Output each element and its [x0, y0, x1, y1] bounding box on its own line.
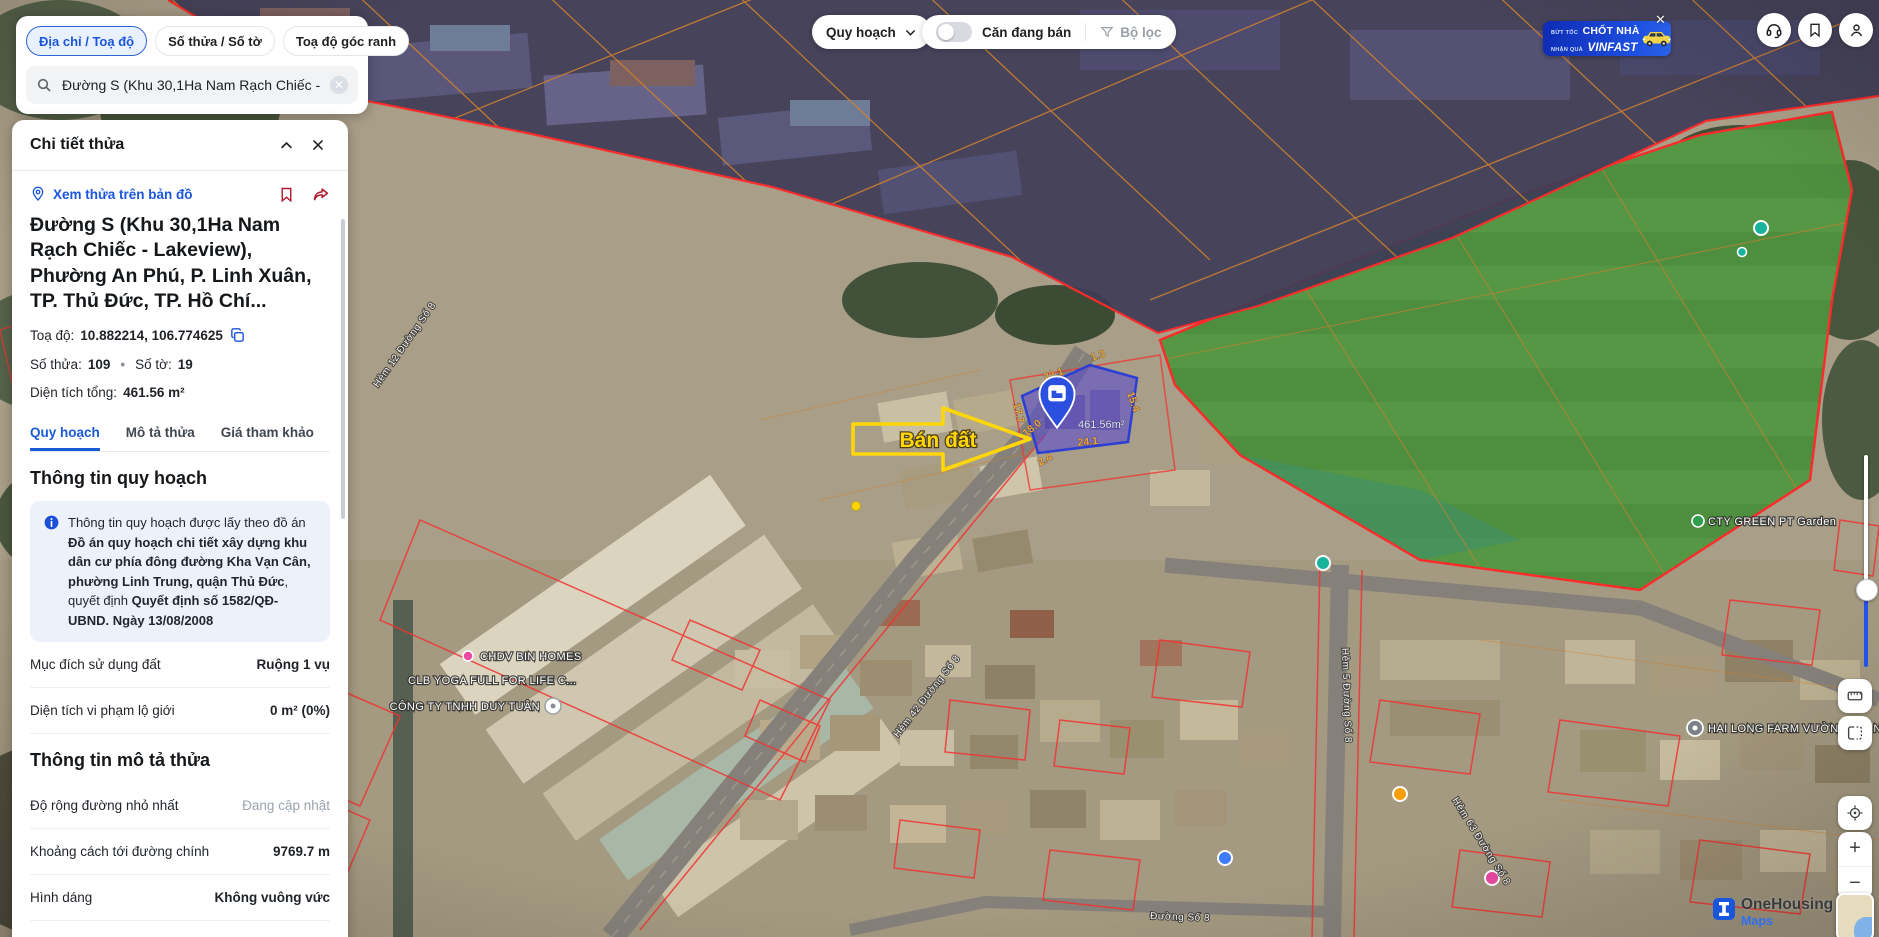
search-icon: [36, 77, 52, 93]
crosshair-icon: [1846, 804, 1864, 822]
planning-note: Thông tin quy hoạch được lấy theo đồ án …: [30, 501, 330, 642]
clear-search-icon[interactable]: ✕: [330, 76, 348, 94]
coordinates-row: Toạ độ: 10.882214, 106.774625: [30, 327, 330, 344]
tab-address-coords[interactable]: Địa chỉ / Toạ độ: [26, 26, 147, 56]
support-button[interactable]: [1757, 13, 1791, 47]
chevron-down-icon: [904, 26, 917, 39]
promo-text: BỨT TỐC CHỐT NHÀ NHẬN QUÀ VINFAST: [1543, 22, 1640, 56]
ruler-icon: [1846, 687, 1864, 705]
row-min-road-width: Độ rộng đường nhỏ nhất Đang cập nhật: [30, 783, 330, 829]
panel-header: Chi tiết thửa: [12, 120, 348, 171]
panel-title: Chi tiết thửa: [30, 136, 274, 154]
account-button[interactable]: [1839, 13, 1873, 47]
promo-close-icon[interactable]: ✕: [1655, 12, 1666, 28]
tab-reference-price[interactable]: Giá tham khảo: [221, 416, 314, 451]
collapse-icon[interactable]: [274, 133, 298, 157]
search-box[interactable]: ✕: [26, 66, 358, 104]
svg-text:CHDV BIN HOMES: CHDV BIN HOMES: [480, 651, 582, 663]
panel-body: Xem thửa trên bản đồ Đường S (Khu 30,1Ha…: [12, 171, 348, 937]
watermark-product: Maps: [1741, 915, 1833, 928]
funnel-icon: [1100, 25, 1114, 39]
row-shape: Hình dáng Không vuông vức: [30, 875, 330, 921]
saved-items-button[interactable]: [1798, 13, 1832, 47]
parcel-detail-panel: Chi tiết thửa Xem thửa trên bản đồ Đường…: [12, 120, 348, 937]
total-area-row: Diện tích tổng:461.56 m²: [30, 385, 330, 400]
description-heading: Thông tin mô tả thửa: [30, 750, 330, 771]
zoom-buttons: + −: [1838, 832, 1872, 900]
brand-watermark: OneHousing Maps: [1712, 897, 1833, 927]
compare-layers-button[interactable]: [1838, 716, 1872, 750]
map-pin-icon: [30, 186, 46, 202]
onehousing-logo: [1712, 897, 1736, 921]
headset-icon: [1765, 21, 1783, 39]
svg-text:CLB YOGA FULL FOR LIFE C...: CLB YOGA FULL FOR LIFE C...: [408, 675, 577, 687]
sale-dot: [852, 502, 861, 511]
zoom-slider-track-lower[interactable]: [1864, 597, 1868, 667]
sale-tag-label: Bán đất: [899, 429, 976, 452]
minimap-toggle[interactable]: [1836, 893, 1874, 937]
layers-dropdown[interactable]: Quy hoạch: [812, 15, 931, 49]
car-illustration: [1642, 24, 1671, 54]
view-on-map-link[interactable]: Xem thửa trên bản đồ: [53, 187, 193, 202]
app-window: 22.1 15.4 24.1 18.0 2.4 17.7 1.3 461.56m…: [0, 0, 1879, 937]
planning-heading: Thông tin quy hoạch: [30, 468, 330, 489]
info-icon: [44, 515, 59, 530]
split-view-icon: [1846, 724, 1864, 742]
view-on-map-row: Xem thửa trên bản đồ: [30, 185, 330, 203]
search-mode-tabs: Địa chỉ / Toạ độ Số thửa / Số tờ Toạ độ …: [26, 26, 358, 56]
svg-text:Đường Số 8: Đường Số 8: [1150, 910, 1210, 924]
coordinates-value: 10.882214, 106.774625: [80, 328, 223, 343]
search-card: Địa chỉ / Toạ độ Số thửa / Số tờ Toạ độ …: [16, 16, 368, 114]
filter-button[interactable]: Bộ lọc: [1100, 25, 1161, 40]
share-icon[interactable]: [312, 185, 330, 203]
bookmark-icon: [1807, 22, 1823, 38]
row-land-use: Mục đích sử dụng đất Ruộng 1 vụ: [30, 642, 330, 688]
row-adjacent-sides: Số mặt tiếp giáp Đang cập nhật: [30, 921, 330, 937]
minimap-water: [1854, 917, 1874, 937]
canal: [393, 600, 413, 937]
close-icon[interactable]: [306, 133, 330, 157]
copy-icon[interactable]: [229, 327, 246, 344]
parcel-address: Đường S (Khu 30,1Ha Nam Rạch Chiếc - Lak…: [30, 213, 330, 314]
zoom-slider-handle[interactable]: [1856, 579, 1878, 601]
person-icon: [1848, 22, 1865, 39]
zoom-in-button[interactable]: +: [1838, 832, 1872, 867]
svg-text:CTY GREEN PT Garden: CTY GREEN PT Garden: [1708, 516, 1836, 528]
tab-parcel-sheet[interactable]: Số thửa / Số tờ: [155, 26, 275, 56]
row-violation-area: Diện tích vi phạm lộ giới 0 m² (0%): [30, 688, 330, 734]
parcel-sheet-row: Số thửa:109 • Số tờ:19: [30, 357, 330, 372]
bookmark-icon[interactable]: [278, 186, 295, 203]
detail-tabs: Quy hoạch Mô tả thửa Giá tham khảo: [30, 416, 330, 452]
listings-toggle-label: Căn đang bán: [982, 25, 1071, 40]
watermark-brand: OneHousing: [1741, 897, 1833, 913]
listings-toggle[interactable]: [936, 22, 972, 42]
tab-corner-coords[interactable]: Toạ độ góc ranh: [283, 26, 409, 56]
search-input[interactable]: [60, 76, 322, 94]
locate-me-button[interactable]: [1838, 796, 1872, 830]
tab-planning[interactable]: Quy hoạch: [30, 416, 100, 451]
tab-description[interactable]: Mô tả thửa: [126, 416, 195, 451]
svg-text:24.1: 24.1: [1077, 435, 1099, 449]
vinfast-promo-banner[interactable]: BỨT TỐC CHỐT NHÀ NHẬN QUÀ VINFAST: [1543, 21, 1671, 56]
measure-button[interactable]: [1838, 679, 1872, 713]
listings-filter-pill: Căn đang bán Bộ lọc: [922, 15, 1176, 49]
planning-note-text: Thông tin quy hoạch được lấy theo đồ án …: [68, 513, 316, 630]
panel-scrollbar[interactable]: [341, 219, 345, 519]
zoom-slider-track-upper[interactable]: [1864, 455, 1868, 585]
row-distance-main-road: Khoảng cách tới đường chính 9769.7 m: [30, 829, 330, 875]
svg-text:CÔNG TY TNHH DUY TUÂN: CÔNG TY TNHH DUY TUÂN: [390, 700, 540, 713]
parcel-area-label: 461.56m²: [1078, 419, 1125, 431]
